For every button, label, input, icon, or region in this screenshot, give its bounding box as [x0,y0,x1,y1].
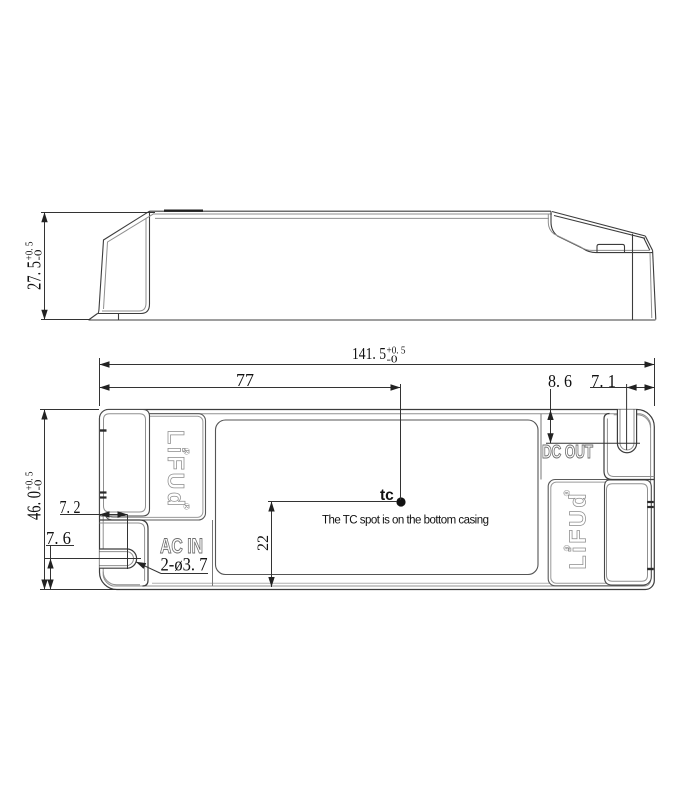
svg-text:®: ® [182,503,192,510]
svg-text:-0: -0 [34,250,45,261]
svg-text:2-ø3. 7: 2-ø3. 7 [161,555,208,576]
svg-text:22: 22 [255,535,272,551]
svg-text:8. 6: 8. 6 [548,371,572,391]
svg-text:7. 6: 7. 6 [46,528,71,548]
svg-text:LiFUd: LiFUd [163,430,189,506]
svg-text:The TC spot is on the bottom c: The TC spot is on the bottom casing [322,515,489,527]
svg-text:7. 2: 7. 2 [60,497,81,517]
svg-text:7. 1: 7. 1 [591,371,616,391]
svg-text:®: ® [182,448,192,455]
svg-text:77: 77 [236,370,254,390]
svg-text:141. 5: 141. 5 [352,344,386,363]
svg-text:-0: -0 [387,355,398,366]
svg-text:27. 5: 27. 5 [24,261,46,290]
svg-text:46. 0: 46. 0 [24,491,46,520]
svg-text:-0: -0 [34,480,45,491]
svg-text:DC OUT: DC OUT [542,442,593,462]
